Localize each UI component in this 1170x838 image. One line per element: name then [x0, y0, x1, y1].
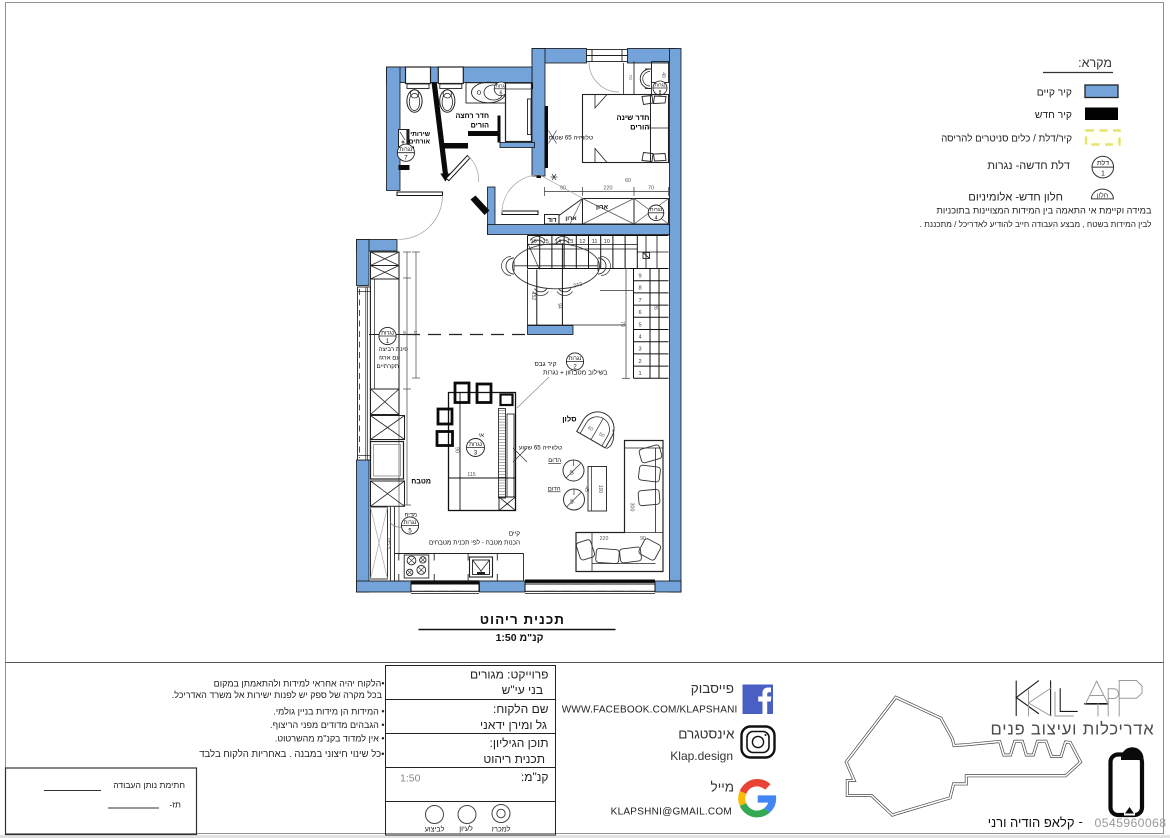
- svg-text:תכנית ריהוט: תכנית ריהוט: [480, 612, 565, 627]
- svg-text:פייסבוק: פייסבוק: [691, 681, 734, 696]
- svg-text:נגרות: נגרות: [650, 207, 662, 213]
- svg-text:95: 95: [645, 124, 651, 130]
- svg-text:חדר רחצה: חדר רחצה: [455, 111, 489, 120]
- svg-text:11: 11: [592, 239, 598, 245]
- svg-text:• אין למדוד בקנ"מ מהשרטוט.: • אין למדוד בקנ"מ מהשרטוט.: [275, 734, 385, 744]
- svg-text:שם הלקוח:: שם הלקוח:: [493, 702, 549, 716]
- svg-text:185.5: 185.5: [385, 537, 391, 550]
- svg-text:במידה וקיימת אי התאמה בין המיד: במידה וקיימת אי התאמה בין המידות המצויינ…: [937, 206, 1152, 216]
- svg-text:נגרות: נגרות: [569, 356, 582, 362]
- svg-text:אי: אי: [479, 432, 485, 439]
- svg-text:115: 115: [467, 472, 475, 478]
- svg-text:1: 1: [638, 371, 641, 377]
- svg-text:נגרות: נגרות: [469, 442, 482, 448]
- svg-text:הורים: הורים: [471, 121, 490, 130]
- svg-text:7: 7: [638, 298, 641, 304]
- svg-text:מייל: מייל: [711, 780, 734, 795]
- svg-text:•הלקוח יהיה אחראי למידות ולהתא: •הלקוח יהיה אחראי למידות ולהתאמתן במקום: [214, 679, 385, 689]
- svg-text:נגרות: נגרות: [399, 147, 412, 153]
- svg-text:לעיון: לעיון: [459, 824, 473, 833]
- svg-text:גל ומירן ידאני: גל ומירן ידאני: [480, 718, 547, 732]
- svg-text:סלון: סלון: [562, 415, 576, 424]
- svg-text:בני עי"ש: בני עי"ש: [502, 683, 543, 697]
- svg-text:60: 60: [625, 178, 631, 184]
- svg-text:90: 90: [454, 447, 460, 453]
- svg-text:קנ"מ 1:50: קנ"מ 1:50: [496, 632, 544, 644]
- svg-text:15: 15: [413, 330, 418, 336]
- svg-text:טלוויזיה 65 שטוח: טלוויזיה 65 שטוח: [549, 134, 593, 142]
- svg-text:6: 6: [638, 310, 641, 316]
- svg-text:1: 1: [1101, 171, 1105, 178]
- svg-text:הכנות מטבח - לפי תכנית מטבחים: הכנות מטבח - לפי תכנית מטבחים: [429, 539, 520, 547]
- svg-text:קיר/דלת / כלים סניטרים להריסה: קיר/דלת / כלים סניטרים להריסה: [941, 133, 1072, 145]
- svg-text:בכל מקרה של ספק יש לפנות ישירו: בכל מקרה של ספק יש לפנות ישירות אל משרד …: [172, 690, 383, 700]
- svg-text:תכנית ריהוט: תכנית ריהוט: [483, 752, 545, 766]
- svg-text:קלאפ הודיה ורני: קלאפ הודיה ורני: [988, 815, 1075, 830]
- svg-text:220: 220: [600, 536, 609, 542]
- svg-text:חלון חדש- אלומיניום: חלון חדש- אלומיניום: [968, 191, 1063, 204]
- svg-text:תוכן הגיליון:: תוכן הגיליון:: [490, 736, 549, 750]
- svg-text:3: 3: [638, 347, 641, 353]
- svg-text:8: 8: [638, 286, 641, 292]
- svg-text:ארון: ארון: [565, 216, 576, 222]
- svg-text:דלת חדשה- נגרות: דלת חדשה- נגרות: [987, 159, 1070, 172]
- svg-text:9: 9: [638, 274, 641, 280]
- svg-text:לביצוע: לביצוע: [425, 825, 445, 834]
- svg-text:220: 220: [604, 186, 613, 192]
- svg-text:KLAPSHNI@GMAIL.COM: KLAPSHNI@GMAIL.COM: [611, 807, 732, 818]
- svg-text:•כל שינוי חיצוני במבנה . באחרי: •כל שינוי חיצוני במבנה . באחריות הלקוח ב…: [199, 748, 384, 760]
- svg-text:4: 4: [638, 335, 641, 341]
- svg-text:70: 70: [619, 321, 625, 327]
- svg-text:45: 45: [402, 330, 407, 336]
- svg-text:חדר שינה: חדר שינה: [616, 113, 649, 122]
- svg-text:70: 70: [648, 186, 654, 192]
- svg-text:70: 70: [627, 74, 633, 80]
- svg-text:2: 2: [638, 359, 641, 365]
- svg-text:הדום: הדום: [548, 487, 561, 493]
- svg-text:קיר גבס: קיר גבס: [534, 361, 556, 368]
- svg-text:1:50: 1:50: [400, 773, 421, 785]
- svg-text:10: 10: [604, 239, 610, 245]
- svg-text:מטבח: מטבח: [411, 477, 431, 486]
- svg-text:חתימת נותן העבודה: חתימת נותן העבודה: [113, 780, 185, 790]
- svg-text:• המידות הן מידות בניין גולמי.: • המידות הן מידות בניין גולמי.: [273, 707, 384, 717]
- svg-text:חלון: חלון: [1097, 192, 1108, 200]
- svg-text:אורחים: אורחים: [409, 139, 431, 146]
- svg-text:טלוויזיה 65 שקוע: טלוויזיה 65 שקוע: [519, 444, 562, 452]
- svg-text:עם ארגז: עם ארגז: [379, 355, 400, 362]
- svg-text:תקרתיים: תקרתיים: [377, 363, 399, 370]
- svg-text:אדריכלות ועיצוב פנים: אדריכלות ועיצוב פנים: [991, 720, 1155, 739]
- svg-text:נגרות: נגרות: [654, 84, 665, 89]
- svg-text:12: 12: [579, 239, 585, 245]
- svg-text:קיר קיים: קיר קיים: [1037, 88, 1072, 99]
- svg-text:תז-: תז-: [169, 800, 181, 810]
- svg-text:100: 100: [597, 485, 603, 494]
- svg-text:קנ"מ:: קנ"מ:: [521, 770, 549, 784]
- svg-text:פינת רביצה: פינת רביצה: [378, 346, 408, 353]
- svg-text:45: 45: [583, 486, 589, 492]
- svg-text:דלת: דלת: [1097, 159, 1109, 167]
- svg-text:פרוייקט: מגורים: פרוייקט: מגורים: [470, 668, 549, 682]
- svg-text:לבין המידות בשטח , מבצע העבודה: לבין המידות בשטח , מבצע העבודה חייב להוד…: [920, 220, 1152, 229]
- svg-text:-: -: [1079, 814, 1083, 829]
- svg-text:ארון: ארון: [596, 204, 609, 211]
- svg-text:דוד: דוד: [547, 217, 556, 224]
- svg-text:למכרז: למכרז: [492, 825, 511, 834]
- svg-text:שירותי: שירותי: [410, 131, 431, 138]
- svg-text:152: 152: [530, 292, 536, 301]
- svg-text:הדום: הדום: [548, 458, 561, 464]
- svg-text:26: 26: [652, 304, 658, 310]
- svg-text:• הגבהים מדודים מפני הריצוף.: • הגבהים מדודים מפני הריצוף.: [270, 720, 384, 730]
- svg-text:0545960068: 0545960068: [1095, 816, 1167, 830]
- svg-text:300: 300: [629, 503, 635, 512]
- svg-text:מקרא:: מקרא:: [1078, 56, 1112, 70]
- svg-text:6: 6: [500, 90, 503, 96]
- svg-text:4: 4: [654, 216, 657, 222]
- svg-text:5: 5: [638, 322, 641, 328]
- svg-text:נגרות: נגרות: [404, 520, 417, 526]
- svg-text:קיר חדש: קיר חדש: [1035, 110, 1072, 121]
- svg-text:40: 40: [660, 72, 666, 78]
- svg-text:קיים: קיים: [509, 531, 521, 538]
- svg-text:נגרות: נגרות: [381, 330, 394, 336]
- svg-text:WWW.FACEBOOK.COM/KLAPSHANI: WWW.FACEBOOK.COM/KLAPSHANI: [562, 705, 738, 716]
- svg-text:Klap.design: Klap.design: [670, 749, 733, 763]
- svg-text:אינסטגרם: אינסטגרם: [678, 727, 735, 742]
- svg-text:94: 94: [556, 303, 562, 309]
